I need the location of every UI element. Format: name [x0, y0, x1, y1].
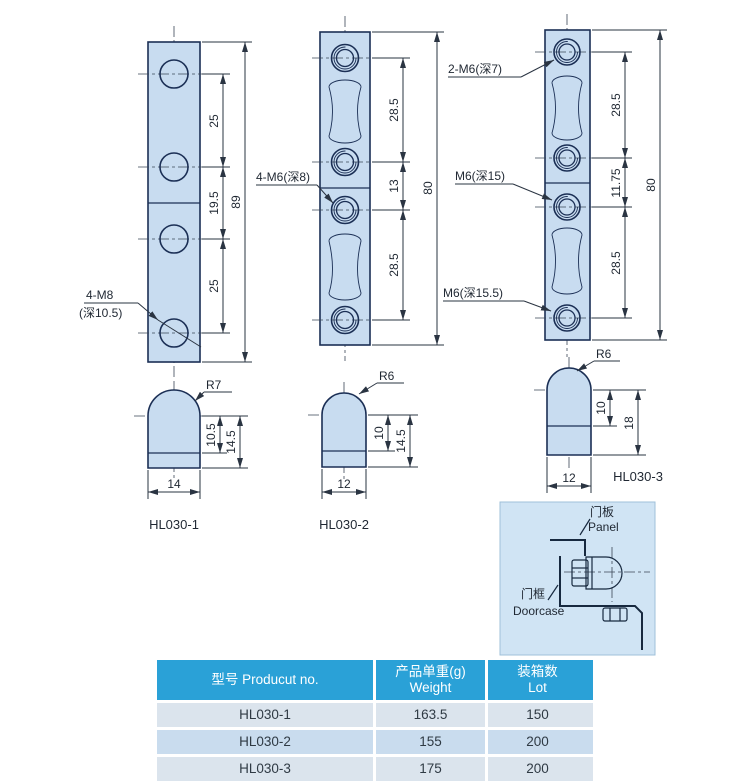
front-view-hl030-1: 25 19.5 25 89 4-M8 (深10.5)	[79, 26, 252, 379]
dim-center-to-base: 10	[372, 426, 386, 440]
doorcase-label-cn: 门框	[521, 586, 545, 601]
hinge-plate	[545, 30, 590, 340]
header-weight-cn: 产品单重(g)	[395, 664, 466, 680]
header-lot-en: Lot	[528, 680, 547, 696]
dim-overall-height: 89	[229, 195, 243, 209]
radius-label: R7	[206, 378, 222, 392]
dim-width: 12	[562, 471, 576, 485]
dim-center-to-bottom: 14.5	[394, 429, 408, 453]
cell-weight: 163.5	[373, 703, 485, 727]
radius-label: R6	[379, 369, 395, 383]
dim-pitch-top: 25	[207, 114, 221, 128]
thread-callout-bot: M6(深15.5)	[443, 286, 551, 311]
model-caption: HL030-1	[149, 517, 199, 532]
table-row: HL030-3 175 200	[157, 757, 593, 781]
spec-table: 型号 Producut no. 产品单重(g) Weight 装箱数 Lot H…	[157, 660, 593, 781]
model-caption: HL030-2	[319, 517, 369, 532]
dim-width: 12	[337, 477, 351, 491]
radius-callout: R6	[359, 369, 404, 394]
dim-overall-height: 80	[421, 181, 435, 195]
cell-weight: 175	[373, 757, 485, 781]
dim-pitch-top: 28.5	[609, 93, 623, 117]
dim-width: 14	[167, 477, 181, 491]
header-weight-en: Weight	[410, 680, 452, 696]
cell-product-no: HL030-2	[157, 730, 373, 754]
cell-product-no: HL030-1	[157, 703, 373, 727]
cell-product-no: HL030-3	[157, 757, 373, 781]
header-product-no-text: 型号 Producut no.	[211, 672, 318, 688]
installation-diagram: 门板 Panel 门框 Doorcase	[500, 502, 655, 655]
panel-label-cn: 门板	[590, 504, 614, 519]
radius-callout: R7	[195, 378, 232, 401]
front-view-hl030-3: 28.5 11.75 28.5 80 2-M6(深7) M6(深15) M6(深…	[443, 14, 667, 357]
dim-center-to-base: 10.5	[204, 423, 218, 447]
dim-center-to-bottom: 14.5	[224, 430, 238, 454]
technical-drawing-canvas: 25 19.5 25 89 4-M8 (深10.5)	[0, 0, 750, 660]
dim-pitch-bot: 28.5	[387, 253, 401, 277]
cell-lot: 200	[485, 730, 587, 754]
profile-body	[547, 368, 591, 455]
panel-label-en: Panel	[588, 520, 619, 534]
radius-label: R6	[596, 347, 612, 361]
side-view-hl030-1: R7 10.5 14.5 14 HL030-1	[134, 378, 248, 532]
dim-pitch-mid: 11.75	[609, 168, 623, 197]
thread-callout-mid: M6(深15)	[455, 169, 552, 200]
front-view-hl030-2: 28.5 13 28.5 80 4-M6(深8)	[256, 16, 444, 361]
profile-body	[148, 390, 200, 468]
dim-center-to-bottom: 18	[622, 416, 636, 430]
header-lot-cn: 装箱数	[517, 664, 558, 680]
header-product-no: 型号 Producut no.	[157, 660, 373, 700]
thread-callout-top: 2-M6(深7)	[448, 60, 554, 77]
model-caption: HL030-3	[613, 469, 663, 484]
dim-center-to-base: 10	[594, 401, 608, 415]
table-row: HL030-1 163.5 150	[157, 703, 593, 727]
cell-lot: 150	[485, 703, 587, 727]
profile-body	[322, 393, 366, 467]
spec-table-header: 型号 Producut no. 产品单重(g) Weight 装箱数 Lot	[157, 660, 593, 700]
dim-overall-height: 80	[644, 178, 658, 192]
doorcase-label-en: Doorcase	[513, 604, 565, 618]
hinge-plate	[148, 42, 200, 362]
thread-label-line1: 4-M8	[86, 288, 114, 302]
thread-label: 4-M6(深8)	[256, 170, 310, 184]
thread-label: M6(深15.5)	[443, 286, 503, 300]
header-lot: 装箱数 Lot	[485, 660, 587, 700]
dim-pitch-bot: 25	[207, 279, 221, 293]
cell-weight: 155	[373, 730, 485, 754]
cell-lot: 200	[485, 757, 587, 781]
dim-pitch-top: 28.5	[387, 98, 401, 122]
side-view-hl030-2: R6 10 14.5 12 HL030-2	[308, 369, 418, 532]
thread-label: M6(深15)	[455, 169, 505, 183]
radius-callout: R6	[577, 347, 620, 371]
thread-label-line2: (深10.5)	[79, 306, 122, 320]
dim-pitch-bot: 28.5	[609, 251, 623, 275]
dim-pitch-mid: 19.5	[207, 191, 221, 215]
thread-label: 2-M6(深7)	[448, 62, 502, 76]
dim-pitch-mid: 13	[387, 179, 401, 193]
table-row: HL030-2 155 200	[157, 730, 593, 754]
header-weight: 产品单重(g) Weight	[373, 660, 485, 700]
side-view-hl030-3: R6 10 18 12 HL030-3	[534, 347, 663, 493]
